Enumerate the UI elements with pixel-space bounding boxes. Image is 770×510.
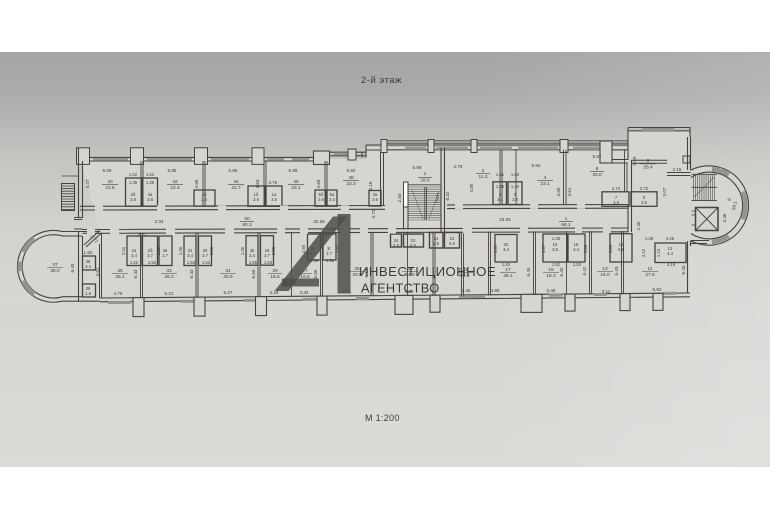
svg-text:25.1: 25.1: [115, 274, 125, 280]
svg-text:1.51: 1.51: [496, 172, 505, 177]
svg-text:17: 17: [505, 267, 511, 273]
svg-text:4.75: 4.75: [114, 291, 123, 296]
svg-text:2.85: 2.85: [301, 244, 306, 253]
svg-text:31: 31: [225, 268, 231, 274]
svg-text:4.4: 4.4: [667, 251, 673, 256]
svg-text:8: 8: [596, 166, 599, 172]
svg-text:2.83: 2.83: [583, 244, 588, 253]
svg-text:11.3: 11.3: [479, 174, 488, 180]
svg-text:4: 4: [544, 175, 547, 181]
svg-text:3.6: 3.6: [318, 197, 324, 202]
svg-text:1.38: 1.38: [552, 236, 561, 241]
svg-text:3.45: 3.45: [462, 288, 471, 293]
svg-text:3.4: 3.4: [329, 197, 335, 202]
svg-text:1.36: 1.36: [496, 184, 505, 189]
svg-text:6.43: 6.43: [526, 267, 531, 276]
svg-text:36.1: 36.1: [503, 273, 513, 279]
svg-text:1: 1: [424, 171, 427, 177]
svg-text:2.72: 2.72: [640, 186, 649, 191]
svg-text:1.53: 1.53: [148, 260, 157, 265]
svg-text:2.04: 2.04: [121, 246, 126, 255]
svg-text:4.58: 4.58: [194, 179, 199, 188]
svg-text:4.26: 4.26: [666, 236, 675, 241]
svg-text:1.52: 1.52: [146, 172, 155, 177]
svg-text:22.4: 22.4: [170, 185, 180, 191]
svg-text:4.64: 4.64: [255, 179, 260, 188]
svg-text:6.43: 6.43: [189, 269, 194, 278]
svg-text:3.7: 3.7: [202, 253, 208, 258]
svg-text:3.19: 3.19: [667, 262, 676, 267]
svg-text:3.11: 3.11: [602, 289, 611, 294]
svg-text:2.78: 2.78: [454, 164, 463, 169]
svg-text:3.81: 3.81: [95, 267, 100, 276]
svg-text:2.5: 2.5: [393, 243, 399, 248]
svg-text:66.1: 66.1: [561, 222, 571, 228]
svg-text:6.43: 6.43: [70, 263, 75, 272]
svg-text:6.60: 6.60: [313, 269, 318, 278]
svg-text:3.4: 3.4: [85, 264, 91, 269]
svg-text:6.43: 6.43: [681, 265, 686, 274]
svg-text:32.65: 32.65: [313, 219, 325, 224]
svg-text:2.85: 2.85: [271, 246, 276, 255]
svg-text:5.83: 5.83: [653, 287, 662, 292]
svg-text:1.53: 1.53: [202, 260, 211, 265]
svg-text:28.6: 28.6: [420, 178, 430, 184]
svg-text:3.42: 3.42: [641, 248, 646, 257]
svg-text:5.83: 5.83: [532, 163, 541, 168]
svg-text:2.5: 2.5: [433, 241, 439, 246]
svg-text:5.85: 5.85: [229, 168, 238, 173]
svg-text:1.53: 1.53: [264, 260, 273, 265]
svg-text:3.48: 3.48: [547, 288, 556, 293]
svg-text:М 1:200: М 1:200: [365, 413, 400, 423]
svg-text:16.0: 16.0: [600, 272, 610, 278]
svg-text:4.85: 4.85: [469, 183, 474, 192]
svg-text:1.52: 1.52: [187, 260, 196, 265]
svg-text:30.5: 30.5: [223, 274, 233, 280]
svg-text:23.6: 23.6: [105, 185, 115, 191]
svg-text:2.85: 2.85: [608, 244, 613, 253]
svg-text:3.6: 3.6: [253, 197, 259, 202]
svg-text:50: 50: [244, 216, 250, 222]
svg-text:23.3: 23.3: [346, 181, 356, 187]
svg-text:1.55: 1.55: [249, 260, 258, 265]
svg-text:3.8: 3.8: [613, 200, 619, 205]
svg-text:2.75: 2.75: [269, 180, 278, 185]
svg-text:2.87: 2.87: [541, 244, 546, 253]
svg-text:3.21: 3.21: [138, 232, 147, 237]
svg-text:3.8: 3.8: [147, 197, 153, 202]
svg-text:4.80: 4.80: [491, 288, 500, 293]
svg-text:3.7: 3.7: [326, 251, 332, 256]
svg-text:35: 35: [117, 268, 123, 274]
svg-text:33.0: 33.0: [592, 172, 602, 178]
svg-text:3.6: 3.6: [372, 197, 378, 202]
svg-text:3.7: 3.7: [147, 253, 153, 258]
svg-text:6.09: 6.09: [103, 168, 112, 173]
svg-text:23.55: 23.55: [499, 217, 511, 222]
svg-text:13: 13: [602, 266, 608, 272]
svg-text:7.01: 7.01: [435, 194, 440, 203]
svg-text:1.36: 1.36: [178, 246, 183, 255]
svg-text:6.43: 6.43: [614, 266, 619, 275]
svg-text:АГЕНТСТВО: АГЕНТСТВО: [361, 281, 439, 296]
svg-text:1.9: 1.9: [85, 291, 91, 296]
svg-text:1.51: 1.51: [326, 258, 335, 263]
svg-text:29: 29: [272, 268, 278, 274]
svg-text:6: 6: [647, 158, 650, 164]
svg-text:5.50: 5.50: [632, 156, 637, 165]
svg-text:1.39: 1.39: [146, 180, 155, 185]
svg-text:2.85: 2.85: [209, 246, 214, 255]
svg-text:3.5: 3.5: [271, 197, 277, 202]
svg-text:28.4: 28.4: [643, 165, 653, 171]
svg-text:23.1: 23.1: [291, 185, 301, 191]
svg-text:37: 37: [52, 262, 58, 268]
svg-text:5.27: 5.27: [224, 290, 233, 295]
svg-text:5.5: 5.5: [618, 247, 624, 252]
svg-text:3.5: 3.5: [641, 200, 647, 205]
svg-text:4.61: 4.61: [567, 187, 572, 196]
svg-text:3.34: 3.34: [300, 290, 309, 295]
svg-text:42: 42: [172, 179, 178, 185]
svg-text:6.43: 6.43: [559, 267, 564, 276]
svg-text:5.18: 5.18: [368, 181, 373, 190]
svg-text:18.3: 18.3: [546, 273, 556, 279]
svg-text:2.73: 2.73: [612, 186, 621, 191]
svg-text:4.47: 4.47: [85, 179, 90, 188]
svg-text:27.5: 27.5: [645, 272, 655, 278]
svg-text:5.99: 5.99: [413, 165, 422, 170]
svg-text:3.7: 3.7: [264, 253, 270, 258]
svg-text:2-й этаж: 2-й этаж: [361, 75, 402, 86]
svg-text:22.7: 22.7: [231, 185, 241, 191]
svg-text:1.36: 1.36: [240, 246, 245, 255]
svg-text:6.60: 6.60: [251, 269, 256, 278]
svg-text:4.60: 4.60: [556, 187, 561, 196]
svg-text:3.4: 3.4: [497, 197, 503, 202]
svg-text:1.7: 1.7: [162, 253, 168, 258]
svg-text:2: 2: [482, 168, 485, 174]
svg-text:3.4: 3.4: [187, 253, 193, 258]
svg-text:4.73: 4.73: [371, 209, 376, 218]
svg-text:1.62: 1.62: [84, 250, 93, 255]
svg-text:35.0: 35.0: [50, 268, 60, 274]
svg-text:3.07: 3.07: [662, 187, 667, 196]
svg-text:3.4: 3.4: [573, 247, 579, 252]
svg-text:3.8: 3.8: [130, 197, 136, 202]
svg-text:3.8: 3.8: [552, 247, 558, 252]
svg-text:23.1: 23.1: [540, 181, 550, 187]
svg-text:3.3: 3.3: [512, 197, 518, 202]
svg-text:6.42: 6.42: [582, 266, 587, 275]
svg-text:2.30: 2.30: [636, 221, 641, 230]
svg-text:44: 44: [233, 179, 239, 185]
svg-text:1.39: 1.39: [129, 180, 138, 185]
svg-text:5.87: 5.87: [593, 154, 602, 159]
svg-text:2.34: 2.34: [155, 219, 164, 224]
svg-text:1.52: 1.52: [129, 172, 138, 177]
svg-text:26.3: 26.3: [164, 274, 174, 280]
svg-text:1.43: 1.43: [656, 248, 661, 257]
svg-text:4.69: 4.69: [316, 179, 321, 188]
svg-text:1.52: 1.52: [502, 262, 511, 267]
svg-text:33: 33: [166, 268, 172, 274]
svg-text:2.50: 2.50: [397, 193, 402, 202]
svg-text:6.32: 6.32: [445, 191, 450, 200]
svg-text:3.4: 3.4: [249, 253, 255, 258]
svg-text:11: 11: [648, 266, 653, 272]
svg-text:3.4: 3.4: [131, 253, 137, 258]
svg-text:5.82: 5.82: [347, 168, 356, 173]
svg-text:3.6: 3.6: [201, 197, 207, 202]
svg-text:48: 48: [348, 175, 354, 181]
svg-text:1: 1: [565, 216, 568, 222]
svg-text:1.38: 1.38: [645, 236, 654, 241]
svg-text:1.52: 1.52: [130, 260, 139, 265]
svg-text:2.86: 2.86: [493, 244, 498, 253]
svg-text:46: 46: [293, 179, 299, 185]
svg-text:5.5: 5.5: [449, 241, 455, 246]
svg-text:40: 40: [107, 179, 113, 185]
svg-text:1.40: 1.40: [511, 184, 520, 189]
svg-text:1.53: 1.53: [573, 262, 582, 267]
svg-text:6.43: 6.43: [133, 269, 138, 278]
svg-text:1.52: 1.52: [552, 262, 561, 267]
svg-text:5.21: 5.21: [165, 291, 174, 296]
svg-text:2.15: 2.15: [673, 167, 682, 172]
svg-text:3.4: 3.4: [503, 247, 509, 252]
svg-text:3.46: 3.46: [722, 213, 727, 222]
svg-text:5.5: 5.5: [410, 243, 416, 248]
svg-text:80.3: 80.3: [242, 222, 252, 228]
svg-text:15: 15: [548, 267, 554, 273]
svg-text:5.85: 5.85: [168, 168, 177, 173]
svg-text:5.86: 5.86: [289, 168, 298, 173]
svg-text:2.85: 2.85: [156, 246, 161, 255]
svg-text:1.50: 1.50: [511, 172, 520, 177]
svg-text:ИНВЕСТИЦИОННОЕ: ИНВЕСТИЦИОННОЕ: [359, 264, 496, 279]
svg-text:18.6: 18.6: [270, 274, 280, 280]
